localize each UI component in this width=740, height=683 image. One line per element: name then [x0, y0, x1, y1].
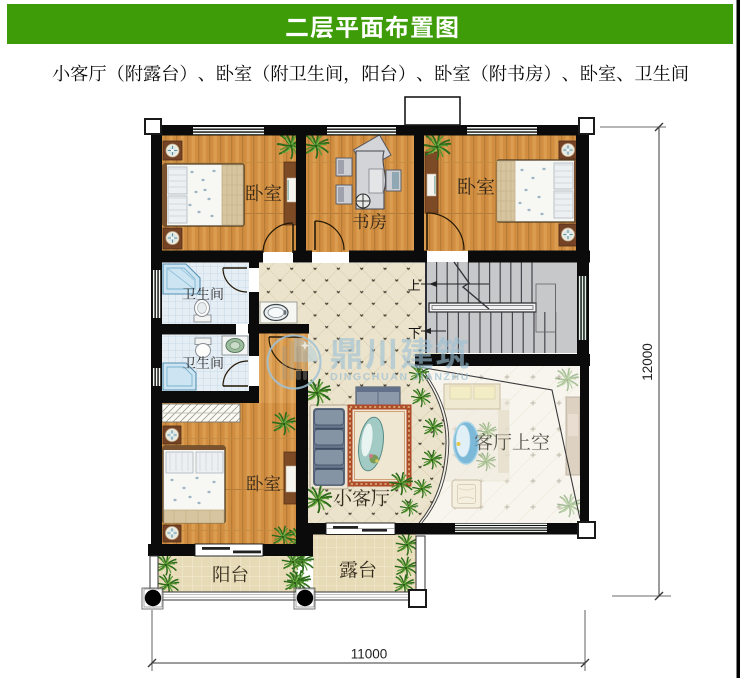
svg-text:11000: 11000 [351, 647, 388, 662]
svg-text:12000: 12000 [640, 343, 655, 381]
svg-text:DINGCHUAN JIANZHU: DINGCHUAN JIANZHU [330, 371, 470, 383]
